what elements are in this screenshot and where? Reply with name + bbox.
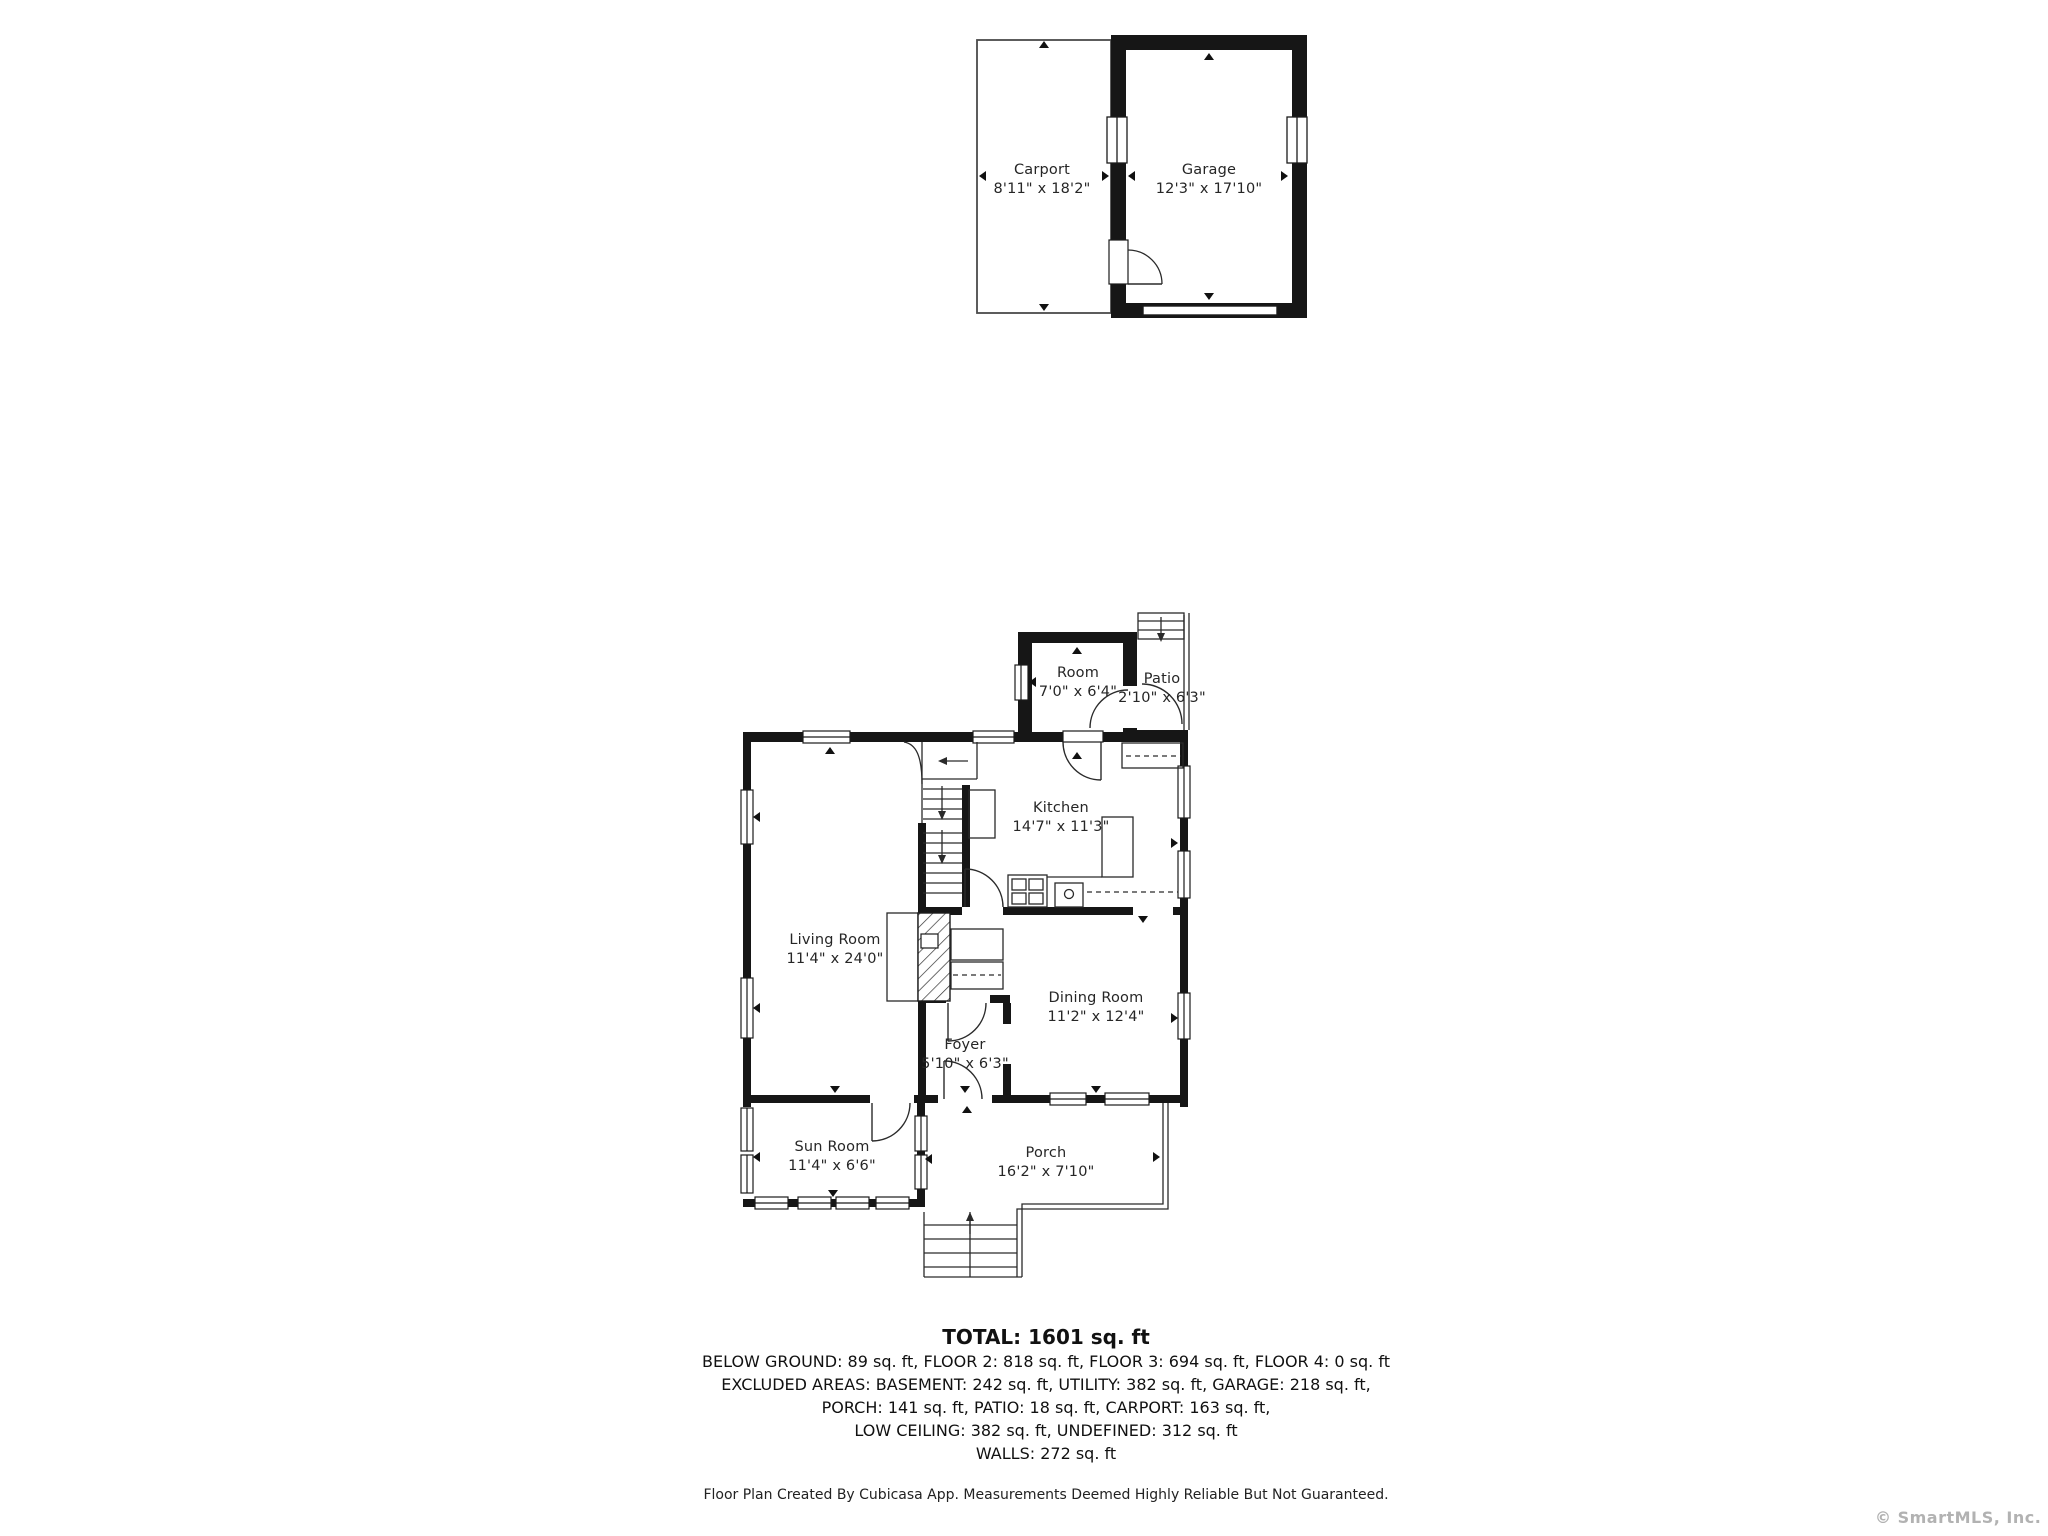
room-dims: 7'0" x 6'4"	[1039, 683, 1117, 702]
room-dims: 8'11" x 18'2"	[993, 180, 1090, 199]
summary-line-3: PORCH: 141 sq. ft, PATIO: 18 sq. ft, CAR…	[702, 1396, 1390, 1419]
room-name: Carport	[993, 161, 1090, 180]
room-dims: 5'10" x 6'3"	[921, 1055, 1009, 1074]
floor-plan-page: Carport 8'11" x 18'2" Garage 12'3" x 17'…	[0, 0, 2048, 1536]
sink	[1055, 883, 1083, 907]
area-summary: TOTAL: 1601 sq. ft BELOW GROUND: 89 sq. …	[702, 1324, 1390, 1465]
room-label-kitchen: Kitchen 14'7" x 11'3"	[1012, 799, 1109, 837]
room-name: Porch	[997, 1144, 1094, 1163]
room-name: Dining Room	[1047, 989, 1144, 1008]
stove	[1008, 875, 1047, 907]
room-label-room: Room 7'0" x 6'4"	[1039, 664, 1117, 702]
fridge	[969, 790, 995, 838]
room-label-patio: Patio 2'10" x 6'3"	[1118, 670, 1206, 708]
room-dims: 16'2" x 7'10"	[997, 1163, 1094, 1182]
room-label-porch: Porch 16'2" x 7'10"	[997, 1144, 1094, 1182]
room-dims: 11'2" x 12'4"	[1047, 1008, 1144, 1027]
summary-line-1: BELOW GROUND: 89 sq. ft, FLOOR 2: 818 sq…	[702, 1350, 1390, 1373]
room-label-carport: Carport 8'11" x 18'2"	[993, 161, 1090, 199]
room-label-living-room: Living Room 11'4" x 24'0"	[786, 931, 883, 969]
room-label-sun-room: Sun Room 11'4" x 6'6"	[788, 1138, 876, 1176]
summary-line-5: WALLS: 272 sq. ft	[702, 1442, 1390, 1465]
room-dims: 11'4" x 6'6"	[788, 1157, 876, 1176]
fireplace	[887, 913, 950, 1001]
room-name: Foyer	[921, 1036, 1009, 1055]
closets	[951, 929, 1003, 989]
total-area-text: TOTAL: 1601 sq. ft	[702, 1324, 1390, 1350]
room-label-dining-room: Dining Room 11'2" x 12'4"	[1047, 989, 1144, 1027]
room-name: Garage	[1156, 161, 1263, 180]
room-label-garage: Garage 12'3" x 17'10"	[1156, 161, 1263, 199]
summary-line-4: LOW CEILING: 382 sq. ft, UNDEFINED: 312 …	[702, 1419, 1390, 1442]
room-dims: 11'4" x 24'0"	[786, 950, 883, 969]
room-name: Sun Room	[788, 1138, 876, 1157]
room-label-foyer: Foyer 5'10" x 6'3"	[921, 1036, 1009, 1074]
room-dims: 14'7" x 11'3"	[1012, 818, 1109, 837]
patio-steps-arrow	[1157, 633, 1165, 642]
room-name: Kitchen	[1012, 799, 1109, 818]
porch-boundary	[924, 1103, 1168, 1277]
smartmls-watermark: © SmartMLS, Inc. 2025	[1875, 1508, 2048, 1527]
room-name: Living Room	[786, 931, 883, 950]
disclaimer-text: Floor Plan Created By Cubicasa App. Meas…	[703, 1487, 1388, 1503]
measurement-ticks	[753, 647, 1178, 1197]
room-name: Room	[1039, 664, 1117, 683]
room-dims: 2'10" x 6'3"	[1118, 689, 1206, 708]
porch-steps-arrow	[966, 1212, 974, 1221]
room-name: Patio	[1118, 670, 1206, 689]
garage-overhead-door	[1143, 306, 1277, 315]
room-dims: 12'3" x 17'10"	[1156, 180, 1263, 199]
floor-plan-drawing	[0, 0, 2048, 1536]
summary-line-2: EXCLUDED AREAS: BASEMENT: 242 sq. ft, UT…	[702, 1373, 1390, 1396]
